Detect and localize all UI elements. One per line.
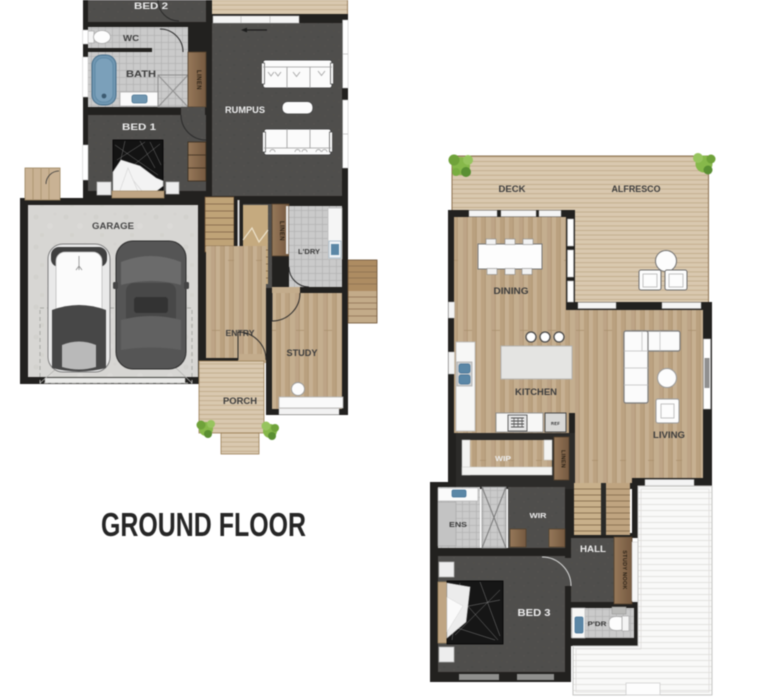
svg-text:LINEN: LINEN: [278, 221, 284, 241]
svg-text:ENS: ENS: [449, 520, 467, 529]
svg-text:DINING: DINING: [494, 286, 529, 296]
svg-text:RUMPUS: RUMPUS: [225, 105, 265, 116]
svg-text:ALFRESCO: ALFRESCO: [612, 184, 661, 194]
svg-text:P'DR: P'DR: [588, 621, 607, 628]
svg-text:HALL: HALL: [580, 544, 607, 554]
svg-text:BATH: BATH: [126, 69, 156, 79]
svg-text:LIVING: LIVING: [653, 430, 685, 440]
svg-text:BED 2: BED 2: [134, 1, 168, 12]
svg-text:STUDY NOOK: STUDY NOOK: [621, 550, 627, 590]
svg-text:L'DRY: L'DRY: [298, 247, 320, 256]
svg-text:STUDY: STUDY: [287, 348, 318, 358]
svg-text:ENTRY: ENTRY: [226, 328, 255, 338]
svg-text:DECK: DECK: [499, 184, 527, 194]
svg-text:KITCHEN: KITCHEN: [515, 387, 557, 398]
svg-text:BED 3: BED 3: [518, 608, 551, 619]
svg-text:BED 1: BED 1: [122, 122, 157, 133]
svg-text:LINEN: LINEN: [560, 450, 566, 468]
svg-text:PORCH: PORCH: [223, 396, 257, 406]
svg-text:GARAGE: GARAGE: [92, 221, 134, 232]
svg-text:WIP: WIP: [495, 454, 511, 463]
svg-text:WC: WC: [123, 34, 139, 43]
svg-text:LINEN: LINEN: [195, 70, 201, 90]
svg-text:WIR: WIR: [530, 511, 548, 520]
svg-text:REF: REF: [551, 421, 560, 426]
svg-text:GROUND FLOOR: GROUND FLOOR: [101, 506, 306, 543]
